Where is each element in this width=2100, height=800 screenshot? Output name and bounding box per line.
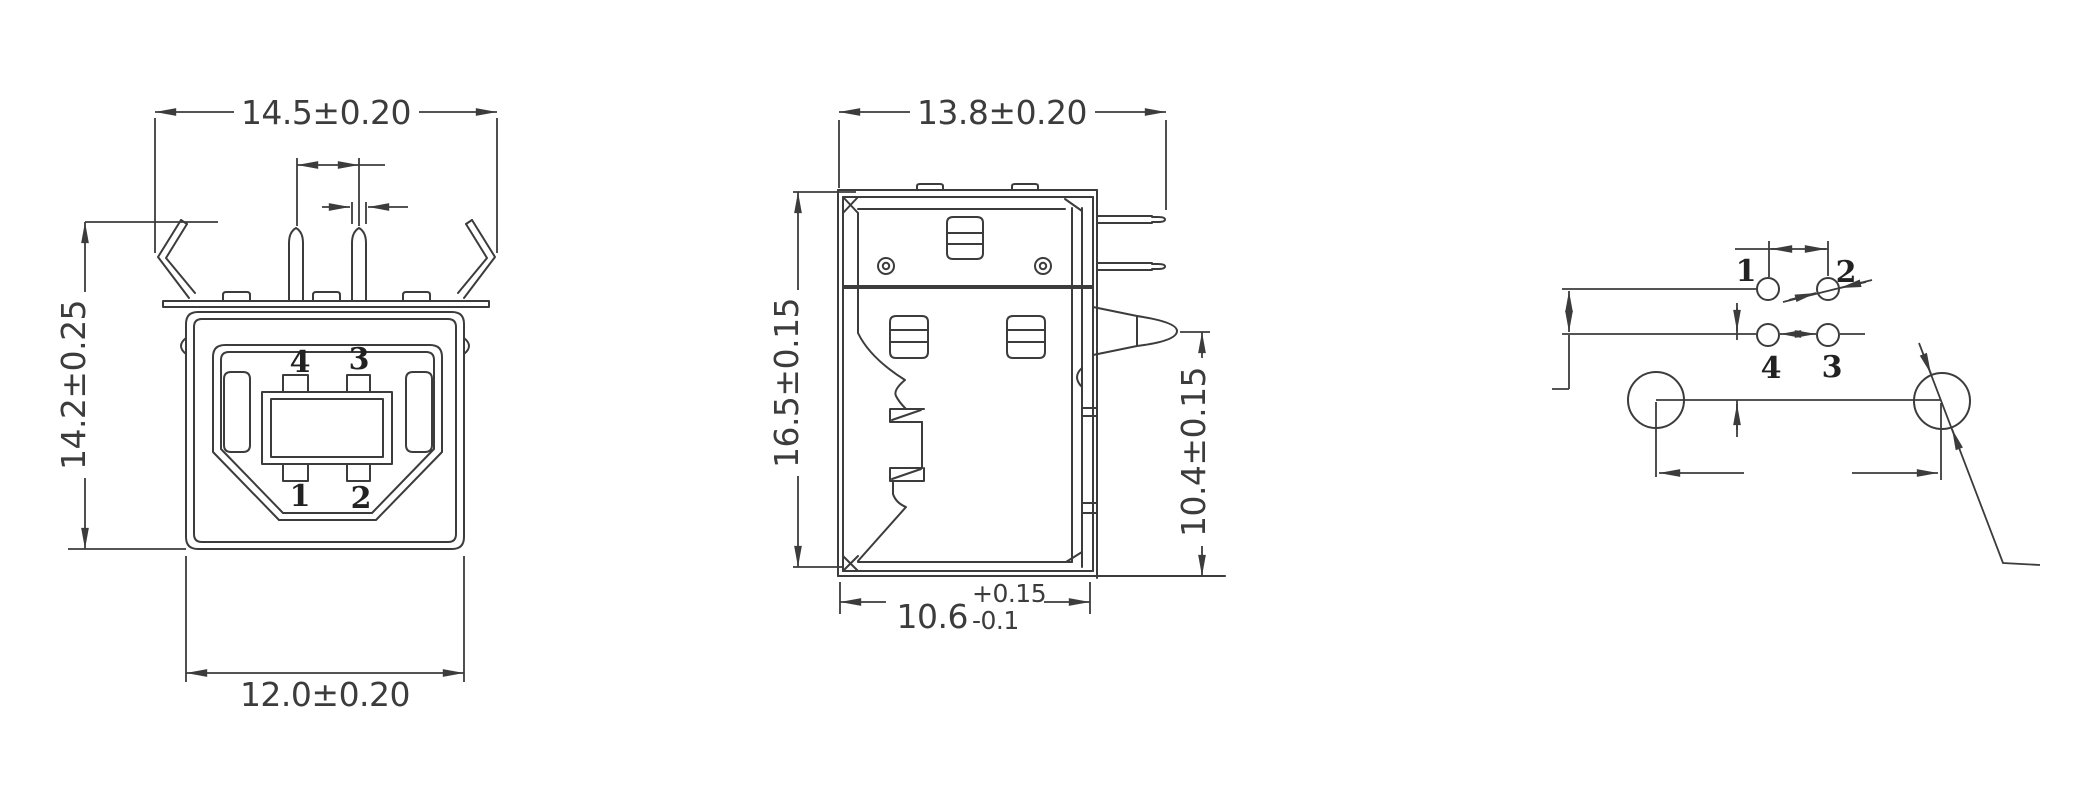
front-dim-width-top: 14.5±0.20 (155, 93, 497, 253)
side-latch-tabs (890, 316, 1045, 358)
footprint-view: 1 2 4 3 (1552, 241, 2040, 565)
front-solder-pins (289, 228, 366, 301)
front-flange (163, 292, 489, 307)
footprint-label-3: 3 (1822, 350, 1843, 385)
front-dim-width-bottom: 12.0±0.20 (186, 556, 464, 714)
footprint-pin-holes (1757, 278, 1839, 346)
side-dim-width-bottom-label: 10.6 (897, 597, 968, 636)
front-pin-label-4: 4 (290, 345, 311, 380)
side-dim-width-bottom: 10.6 +0.15 -0.1 (840, 579, 1090, 636)
side-zigzag-cut (858, 213, 924, 561)
front-socket-opening (213, 345, 442, 520)
usb-connector-drawing: 4 3 1 2 14.5±0.20 14.2±0.25 (0, 0, 2100, 800)
front-dim-width-bottom-label: 12.0±0.20 (240, 675, 410, 714)
footprint-hole-pin1 (1757, 278, 1779, 300)
footprint-hole-pin3 (1817, 324, 1839, 346)
footprint-dim-mount-span (1656, 402, 1941, 480)
side-dim-width-top: 13.8±0.20 (839, 93, 1166, 210)
side-top-details (843, 217, 1093, 287)
front-pin-label-3: 3 (349, 342, 370, 377)
front-dim-pin-spacing (297, 158, 385, 226)
footprint-hole-pin4 (1757, 324, 1779, 346)
footprint-label-1: 1 (1736, 254, 1757, 289)
footprint-mount-hole-leader (1919, 343, 2040, 565)
front-dim-width-top-label: 14.5±0.20 (241, 93, 411, 132)
footprint-hole2-diameter-callout (1783, 280, 1872, 302)
side-dim-height-left-label: 16.5±0.15 (767, 298, 806, 468)
side-view: 13.8±0.20 16.5±0.15 10.4±0.15 10.6 +0.15… (767, 93, 1225, 636)
side-dim-width-bottom-tol-minus: -0.1 (972, 606, 1019, 635)
technical-drawing-canvas: 4 3 1 2 14.5±0.20 14.2±0.25 (0, 0, 2100, 800)
side-dim-height-right: 10.4±0.15 (1174, 332, 1224, 576)
side-dim-width-bottom-tol-plus: +0.15 (972, 579, 1046, 608)
front-pin-label-2: 2 (351, 481, 372, 516)
footprint-label-4: 4 (1761, 351, 1782, 386)
front-view: 4 3 1 2 14.5±0.20 14.2±0.25 (54, 93, 497, 714)
front-dim-pin-width (322, 202, 408, 224)
footprint-dim-row-spacing (1552, 291, 1569, 389)
front-dim-height-label: 14.2±0.25 (54, 300, 93, 470)
side-dim-width-top-label: 13.8±0.20 (917, 93, 1087, 132)
front-mounting-clips (158, 220, 495, 298)
footprint-center-line (1656, 400, 1941, 437)
front-pin-label-1: 1 (290, 479, 311, 514)
side-dim-height-right-label: 10.4±0.15 (1174, 367, 1213, 537)
